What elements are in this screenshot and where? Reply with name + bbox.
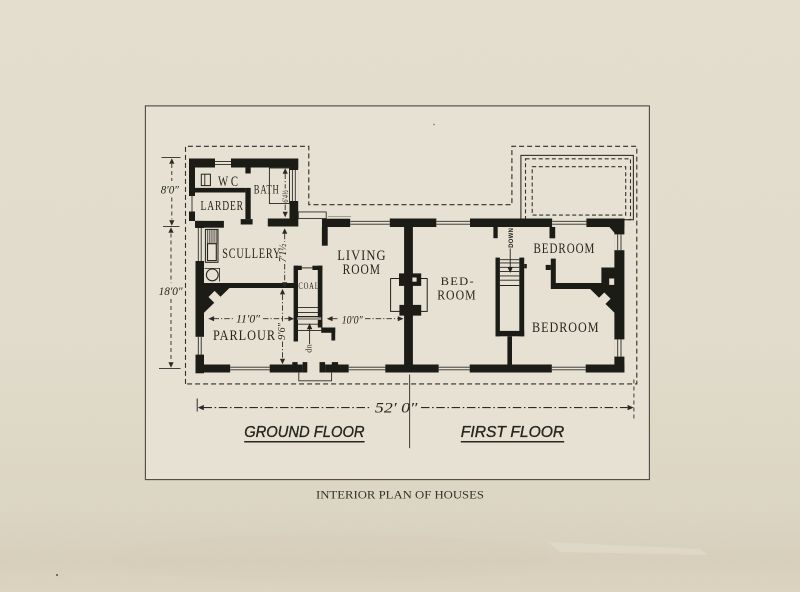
svg-text:LARDER: LARDER bbox=[201, 198, 244, 213]
svg-text:BEDROOM: BEDROOM bbox=[534, 241, 596, 257]
svg-text:PARLOUR: PARLOUR bbox=[213, 328, 276, 344]
svg-text:COAL: COAL bbox=[298, 282, 319, 292]
svg-text:FIRST FLOOR: FIRST FLOOR bbox=[461, 424, 564, 441]
svg-text:52′ 0″: 52′ 0″ bbox=[375, 400, 418, 416]
svg-text:BEDROOM: BEDROOM bbox=[532, 320, 600, 336]
svg-text:8′0″: 8′0″ bbox=[161, 183, 180, 197]
svg-text:BATH: BATH bbox=[254, 182, 280, 197]
svg-text:11′0″: 11′0″ bbox=[236, 313, 260, 325]
svg-text:SCULLERY: SCULLERY bbox=[222, 246, 281, 262]
svg-text:9′6″: 9′6″ bbox=[276, 323, 288, 340]
svg-text:ROOM: ROOM bbox=[343, 262, 381, 278]
svg-text:DOWN: DOWN bbox=[508, 228, 515, 248]
svg-text:W C: W C bbox=[218, 174, 238, 190]
svg-text:10′0″: 10′0″ bbox=[342, 315, 363, 327]
svg-text:18′0″: 18′0″ bbox=[159, 284, 184, 298]
svg-text:ROOM: ROOM bbox=[437, 289, 476, 304]
svg-text:6′4½: 6′4½ bbox=[280, 190, 290, 203]
svg-text:up: up bbox=[306, 344, 315, 353]
svg-text:GROUND FLOOR: GROUND FLOOR bbox=[244, 424, 364, 441]
svg-text:INTERIOR PLAN OF HOUSES: INTERIOR PLAN OF HOUSES bbox=[316, 487, 484, 501]
svg-text:BED-: BED- bbox=[441, 274, 475, 288]
